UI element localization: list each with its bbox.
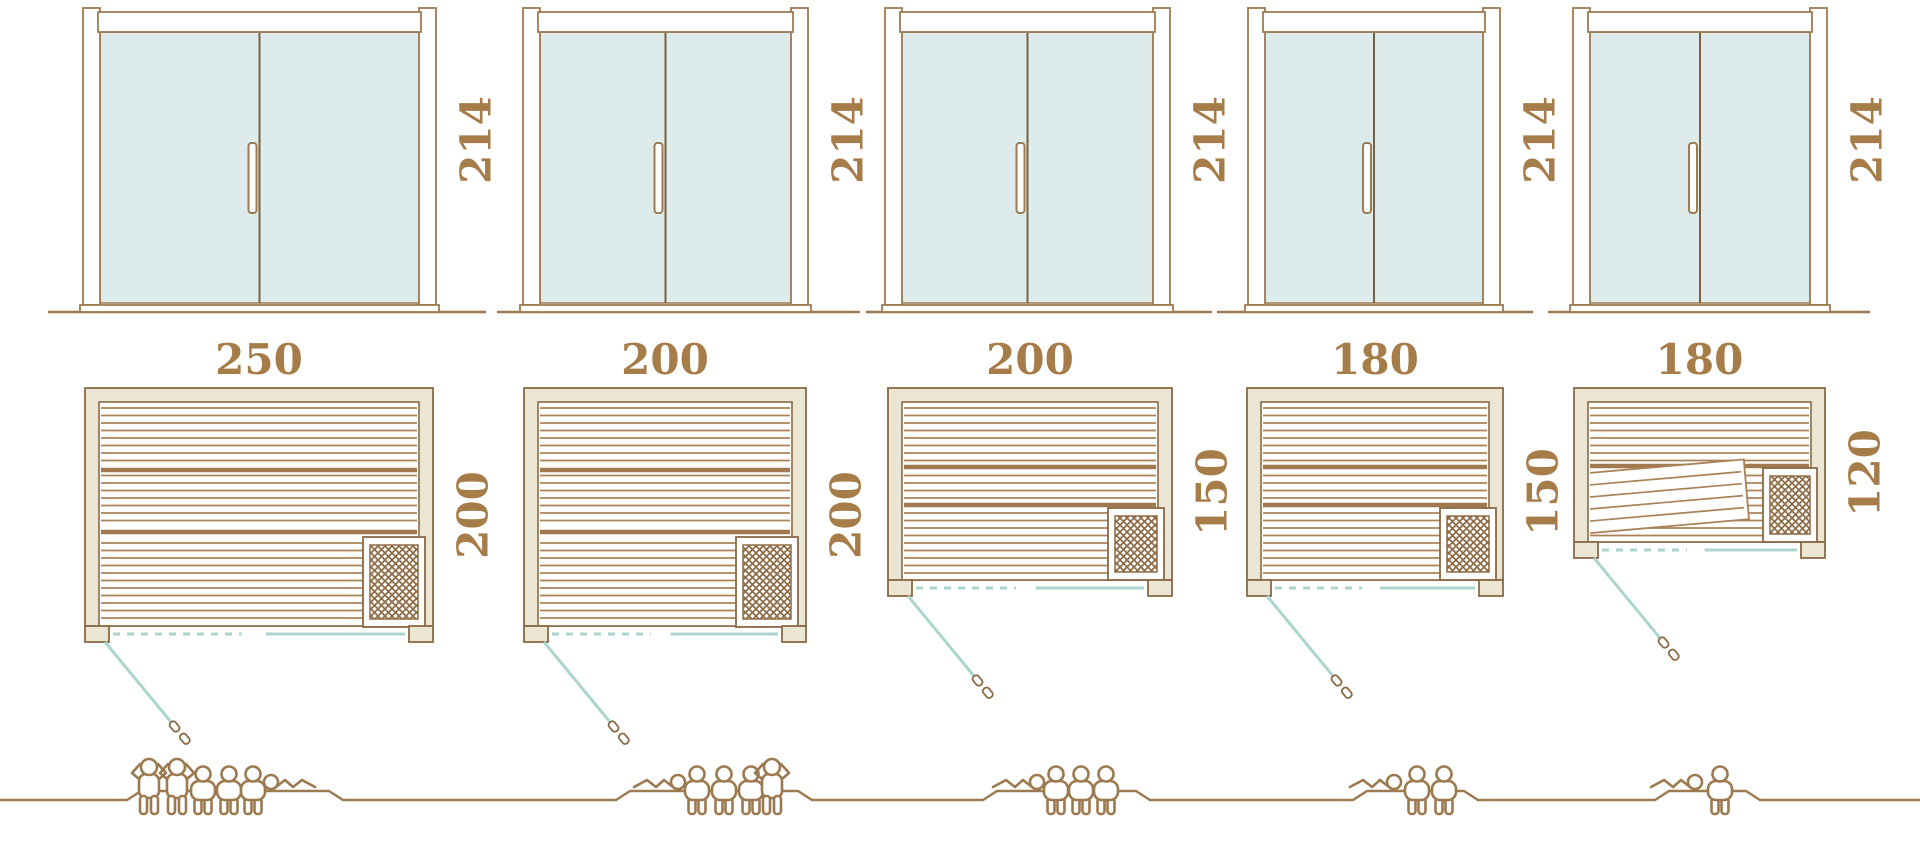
person-reclining-icon <box>264 775 315 789</box>
heater-lattice <box>370 545 418 619</box>
door-post-plan-left <box>1574 542 1598 558</box>
door-post-right <box>419 8 436 305</box>
plan-door-handle <box>971 674 994 699</box>
person-seated-icon <box>1432 767 1456 815</box>
heater-lattice <box>1770 476 1810 534</box>
floor-plan: 250200 <box>85 335 498 745</box>
door-post-left <box>523 8 540 305</box>
door-post-plan-left <box>888 580 912 596</box>
open-door-leaf <box>105 642 171 722</box>
door-header <box>1263 12 1485 32</box>
person-seated-icon <box>241 767 265 815</box>
diagram-canvas: 2142502002142002002142001502141801502141… <box>0 0 1920 843</box>
door-elevation: 214 <box>1217 8 1565 312</box>
person-seated-icon <box>1405 767 1429 815</box>
door-height-label: 214 <box>1516 96 1565 184</box>
plan-door-handle <box>168 720 191 745</box>
capacity-figures <box>634 759 789 814</box>
person-seated-icon <box>685 767 709 815</box>
floor-plan: 180120 <box>1572 335 1889 661</box>
floor-plan: 200150 <box>888 335 1237 699</box>
plan-depth-label: 120 <box>1841 429 1890 517</box>
person-standing-icon <box>160 759 194 814</box>
door-post-plan-right <box>409 626 433 642</box>
person-seated-icon <box>1094 767 1118 815</box>
heater-lattice <box>1447 516 1489 572</box>
open-door-leaf <box>1267 596 1333 676</box>
door-elevation: 214 <box>1548 8 1892 312</box>
person-reclining-icon <box>634 775 685 789</box>
plan-width-label: 180 <box>1331 335 1419 384</box>
person-reclining-icon <box>1350 775 1401 789</box>
plan-depth-label: 150 <box>1519 448 1568 536</box>
door-post-right <box>791 8 808 305</box>
plan-width-label: 200 <box>986 335 1074 384</box>
door-post-left <box>1573 8 1590 305</box>
ground-line <box>0 791 1920 800</box>
heater <box>363 537 425 627</box>
plan-depth-label: 200 <box>822 471 871 559</box>
door-post-left <box>83 8 100 305</box>
heater <box>1763 468 1817 542</box>
floor-plan: 200200 <box>524 335 871 745</box>
door-post-right <box>1483 8 1500 305</box>
plan-door-handle <box>1330 674 1353 699</box>
plan-door-handle <box>607 720 630 745</box>
heater-lattice <box>743 545 791 619</box>
door-sill <box>882 305 1173 312</box>
door-post-left <box>1248 8 1265 305</box>
door-handle <box>1363 143 1371 213</box>
person-seated-icon <box>1069 767 1093 815</box>
door-height-label: 214 <box>1843 96 1892 184</box>
person-reclining-icon <box>993 775 1044 789</box>
person-seated-icon <box>712 767 736 815</box>
door-post-left <box>885 8 902 305</box>
person-seated-icon <box>191 767 215 815</box>
person-reclining-icon <box>1651 775 1702 789</box>
door-post-right <box>1810 8 1827 305</box>
plan-door-handle <box>1657 636 1680 661</box>
plan-width-label: 250 <box>215 335 303 384</box>
heater <box>736 537 798 627</box>
door-post-plan-right <box>1148 580 1172 596</box>
door-sill <box>1245 305 1503 312</box>
door-post-plan-right <box>1801 542 1825 558</box>
door-post-right <box>1153 8 1170 305</box>
door-post-plan-left <box>1247 580 1271 596</box>
floor-plan: 180150 <box>1247 335 1568 699</box>
door-handle <box>249 143 257 213</box>
heater <box>1440 508 1496 580</box>
door-post-plan-right <box>782 626 806 642</box>
heater-lattice <box>1115 516 1157 572</box>
heater <box>1108 508 1164 580</box>
door-header <box>900 12 1155 32</box>
open-door-leaf <box>1594 558 1660 638</box>
open-door-leaf <box>544 642 610 722</box>
plan-depth-label: 150 <box>1188 448 1237 536</box>
person-seated-icon <box>1708 767 1732 815</box>
plan-width-label: 180 <box>1656 335 1744 384</box>
plan-width-label: 200 <box>621 335 709 384</box>
open-door-leaf <box>908 596 974 676</box>
door-post-plan-left <box>85 626 109 642</box>
door-header <box>98 12 421 32</box>
door-height-label: 214 <box>452 96 501 184</box>
plan-depth-label: 200 <box>449 471 498 559</box>
door-sill <box>1570 305 1830 312</box>
door-height-label: 214 <box>824 96 873 184</box>
door-header <box>1588 12 1812 32</box>
door-post-plan-right <box>1479 580 1503 596</box>
sauna-size-diagram: 2142502002142002002142001502141801502141… <box>0 0 1920 843</box>
person-seated-icon <box>1044 767 1068 815</box>
person-seated-icon <box>217 767 241 815</box>
person-seated-icon <box>739 767 763 815</box>
door-height-label: 214 <box>1186 96 1235 184</box>
door-sill <box>80 305 439 312</box>
door-elevation: 214 <box>48 8 501 312</box>
door-elevation: 214 <box>497 8 873 312</box>
door-elevation: 214 <box>866 8 1235 312</box>
door-handle <box>655 143 663 213</box>
person-standing-icon <box>132 759 166 814</box>
door-handle <box>1017 143 1025 213</box>
capacity-figures <box>132 759 315 814</box>
door-sill <box>520 305 811 312</box>
door-header <box>538 12 793 32</box>
door-post-plan-left <box>524 626 548 642</box>
door-handle <box>1689 143 1697 213</box>
